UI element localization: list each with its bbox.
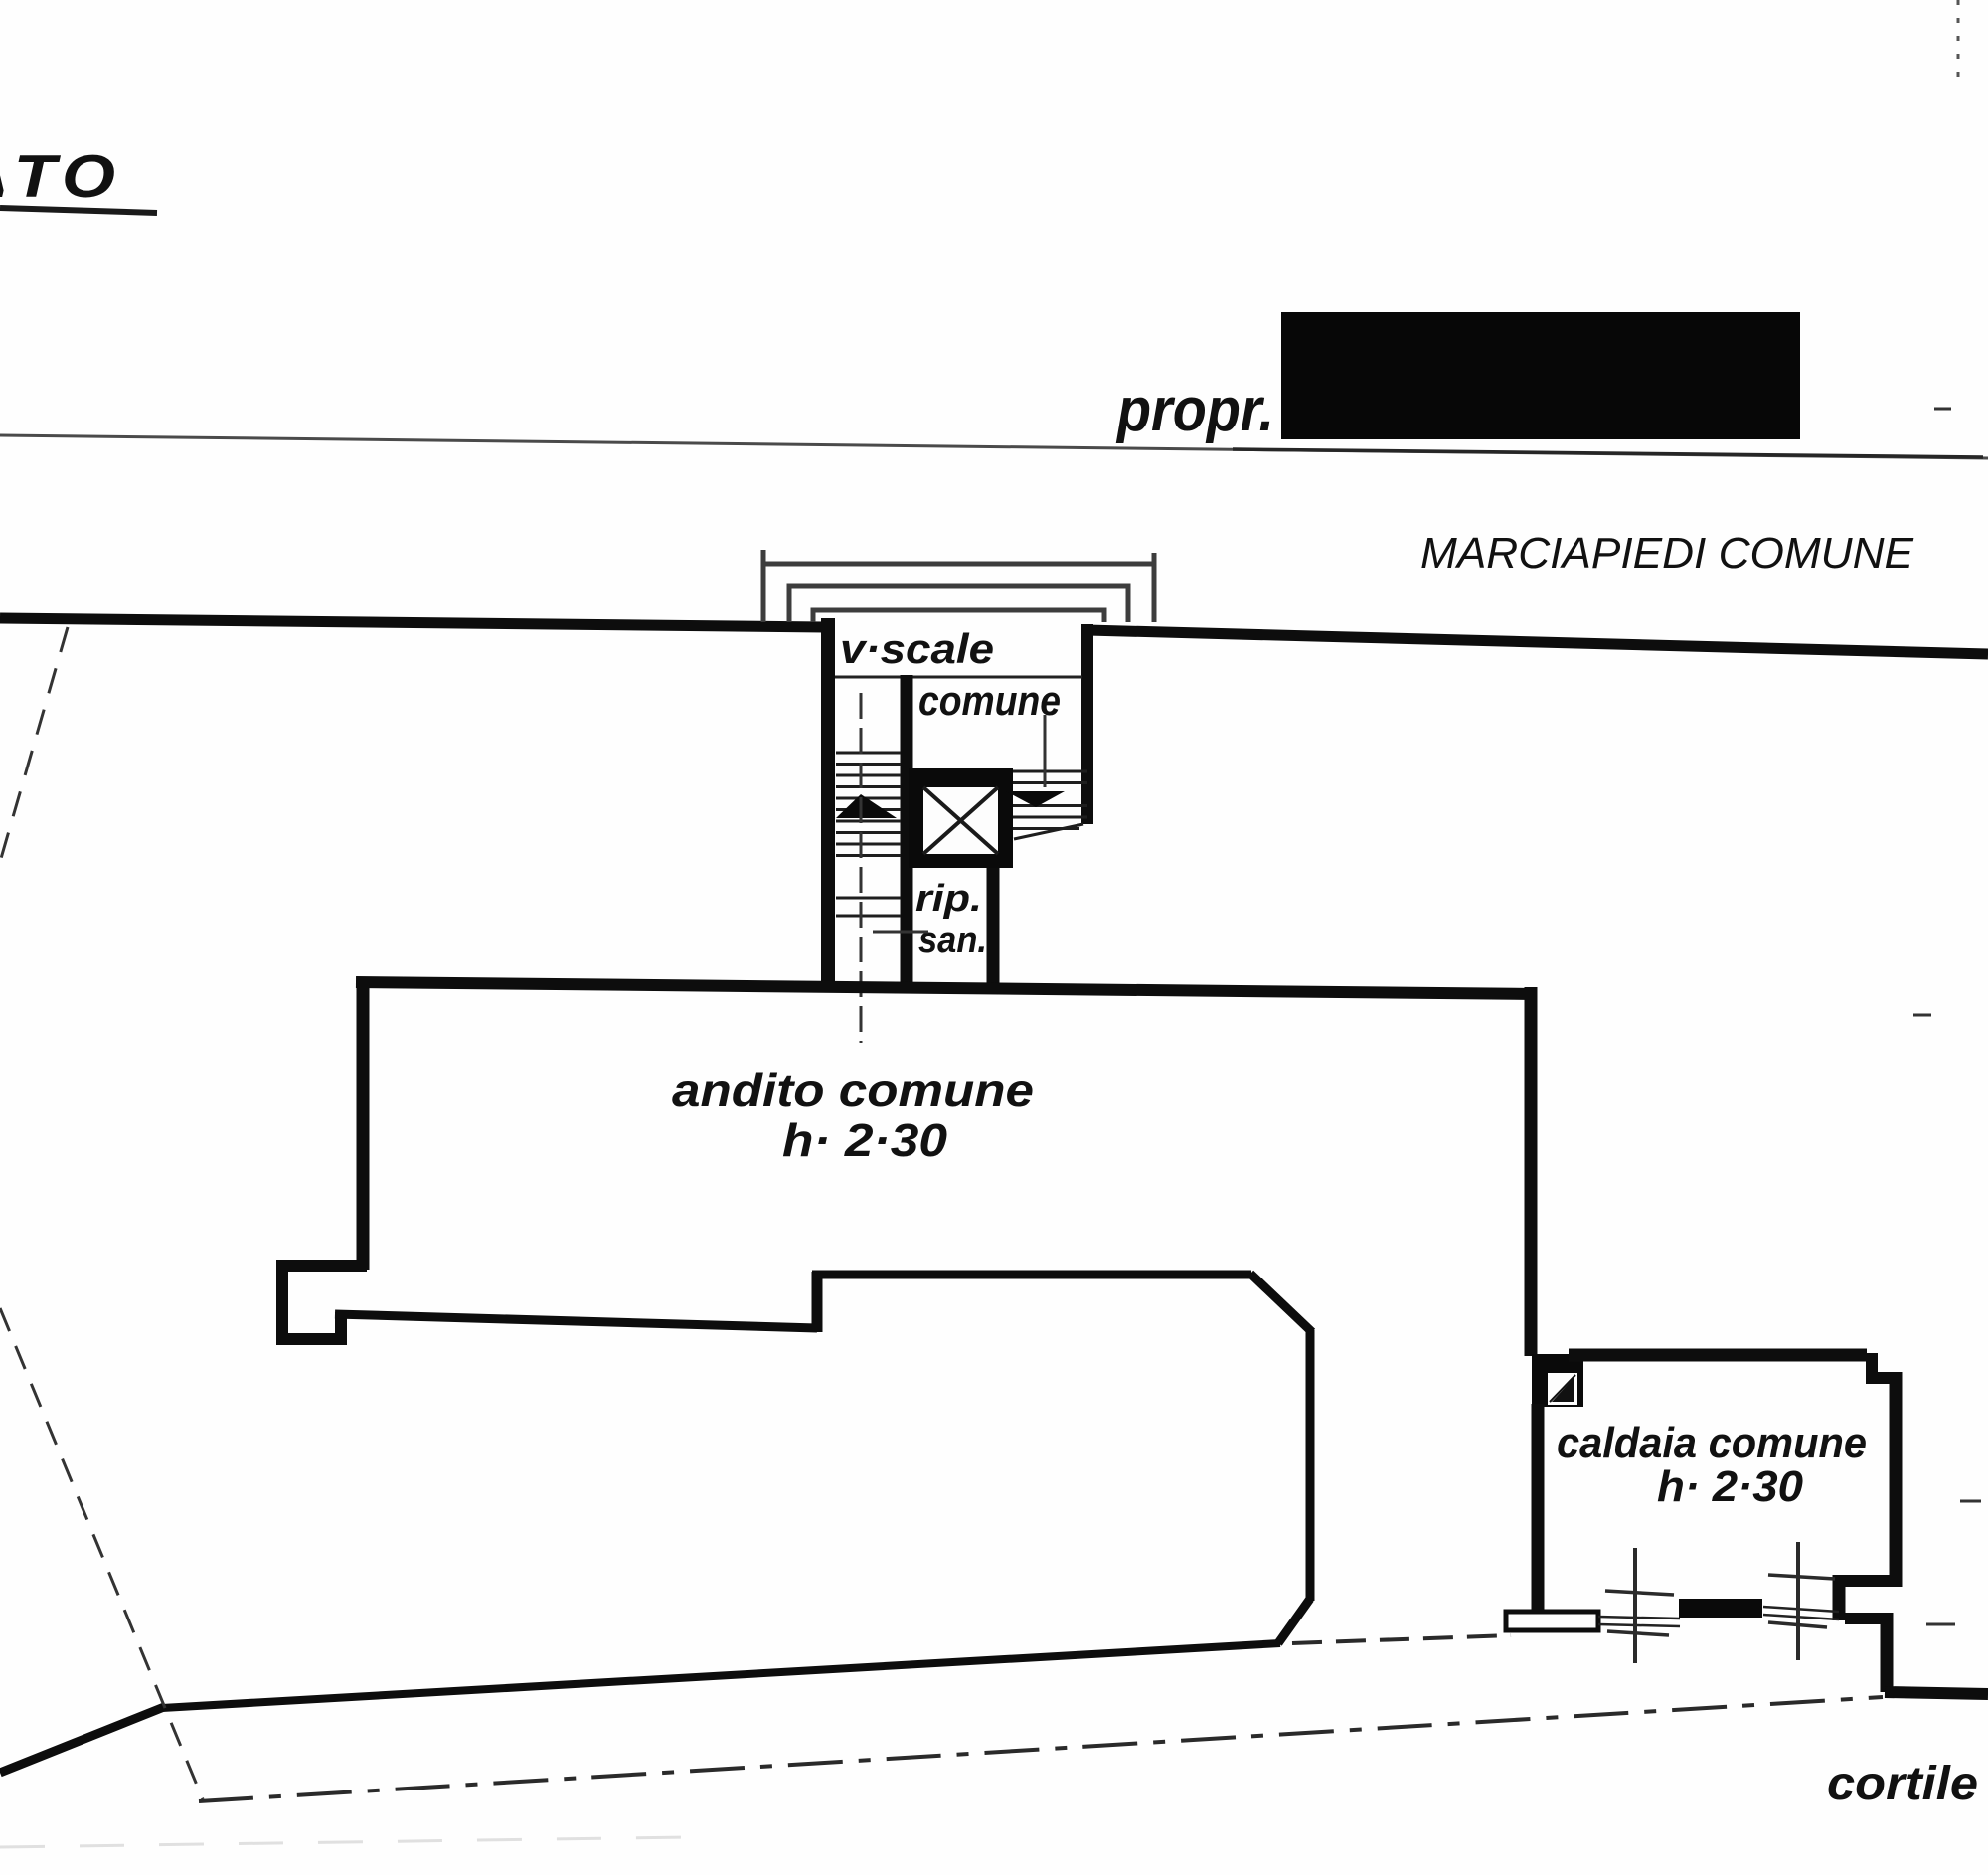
svg-text:comune: comune xyxy=(918,677,1061,724)
svg-text:ΔTO: ΔTO xyxy=(0,143,122,210)
svg-text:san.: san. xyxy=(918,920,987,961)
svg-text:h· 2·30: h· 2·30 xyxy=(1657,1462,1804,1511)
svg-text:cortile: cortile xyxy=(1827,1758,1978,1810)
svg-text:propr.: propr. xyxy=(1115,376,1274,444)
svg-text:andito comune: andito comune xyxy=(672,1064,1034,1115)
svg-text:caldaia comune: caldaia comune xyxy=(1557,1419,1867,1467)
svg-text:rip.: rip. xyxy=(915,878,982,920)
svg-text:MARCIAPIEDI COMUNE: MARCIAPIEDI COMUNE xyxy=(1420,529,1914,578)
svg-text:v·scale: v·scale xyxy=(840,625,994,672)
svg-text:h· 2·30: h· 2·30 xyxy=(782,1114,947,1166)
